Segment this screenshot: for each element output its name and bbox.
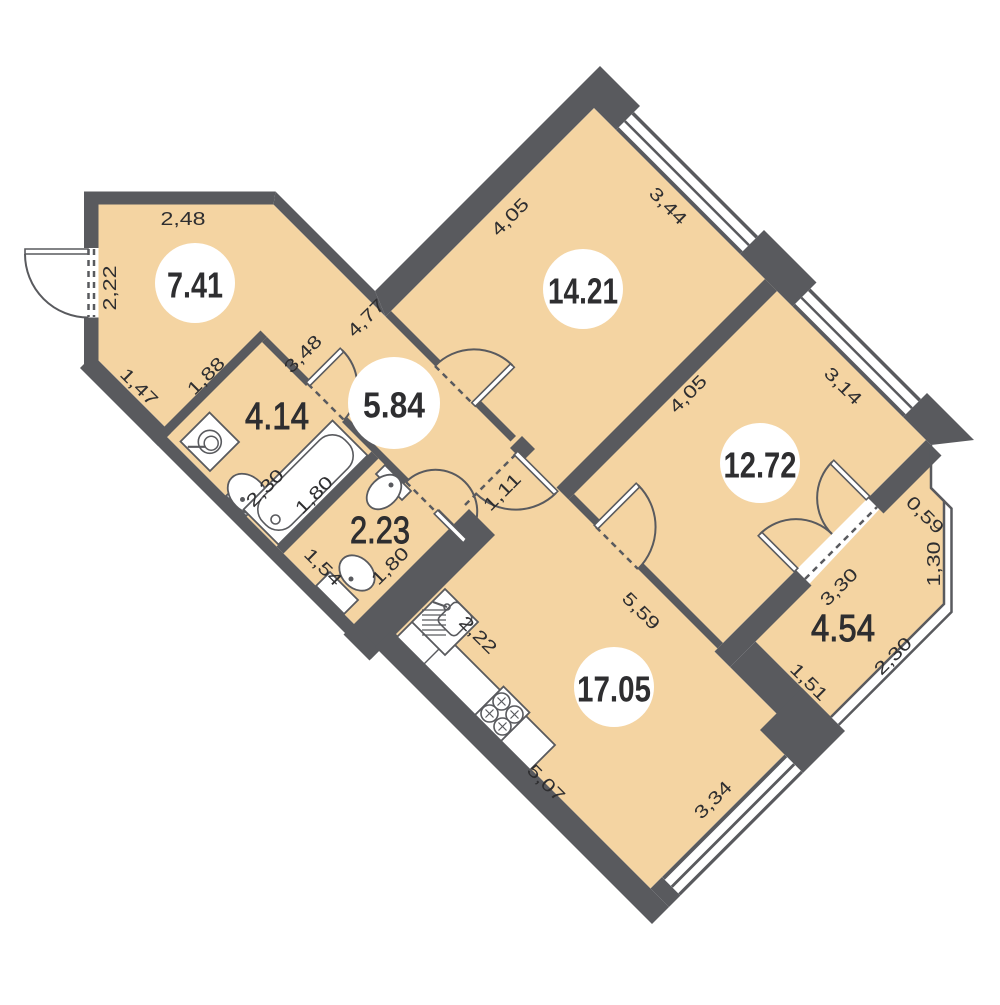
- svg-text:14.21: 14.21: [548, 271, 618, 312]
- svg-text:4.14: 4.14: [245, 396, 309, 438]
- svg-text:2,22: 2,22: [100, 266, 120, 311]
- svg-text:7.41: 7.41: [167, 265, 223, 306]
- svg-text:4.54: 4.54: [811, 608, 875, 650]
- svg-text:5.84: 5.84: [363, 385, 425, 426]
- svg-text:17.05: 17.05: [577, 669, 651, 710]
- svg-text:2,48: 2,48: [161, 209, 206, 229]
- svg-text:12.72: 12.72: [724, 445, 797, 486]
- svg-text:1,30: 1,30: [924, 542, 944, 587]
